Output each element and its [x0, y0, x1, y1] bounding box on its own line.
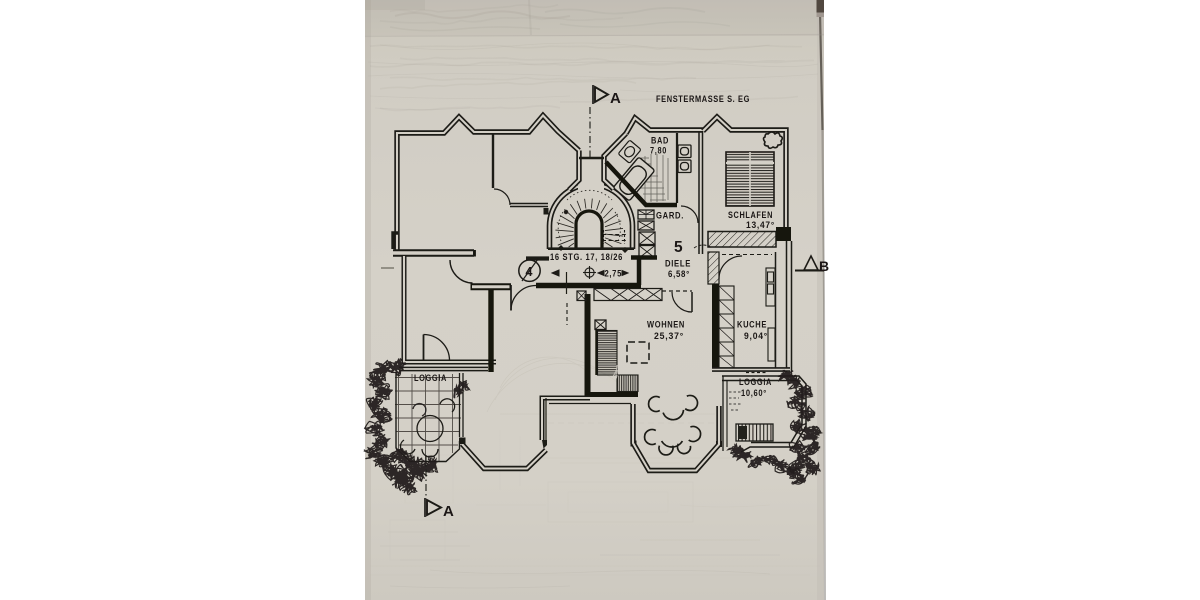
svg-text:BAD: BAD	[651, 136, 669, 146]
svg-text:B: B	[819, 258, 829, 274]
svg-text:9,04°: 9,04°	[744, 331, 768, 341]
svg-text:2,75: 2,75	[605, 269, 623, 280]
svg-text:LOGGIA: LOGGIA	[739, 377, 772, 387]
svg-text:6,58°: 6,58°	[668, 269, 690, 279]
svg-text:10,60°: 10,60°	[741, 388, 767, 398]
svg-text:FENSTERMASSE S. EG: FENSTERMASSE S. EG	[656, 94, 750, 105]
svg-text:A: A	[443, 503, 454, 520]
svg-text:7,80: 7,80	[650, 146, 667, 156]
svg-text:4: 4	[526, 265, 533, 279]
svg-text:16 STG. 17, 18/26: 16 STG. 17, 18/26	[550, 252, 623, 262]
svg-text:5: 5	[674, 239, 683, 256]
svg-text:SCHLAFEN: SCHLAFEN	[728, 210, 773, 220]
svg-text:DIELE: DIELE	[665, 259, 691, 269]
svg-text:13,47°: 13,47°	[746, 220, 775, 230]
svg-text:A: A	[610, 90, 621, 107]
svg-text:LOGGIA: LOGGIA	[414, 373, 447, 383]
svg-text:25,37°: 25,37°	[654, 331, 684, 341]
svg-text:WOHNEN: WOHNEN	[647, 320, 685, 331]
svg-text:GARD.: GARD.	[656, 211, 684, 221]
svg-text:KUCHE: KUCHE	[737, 320, 767, 330]
